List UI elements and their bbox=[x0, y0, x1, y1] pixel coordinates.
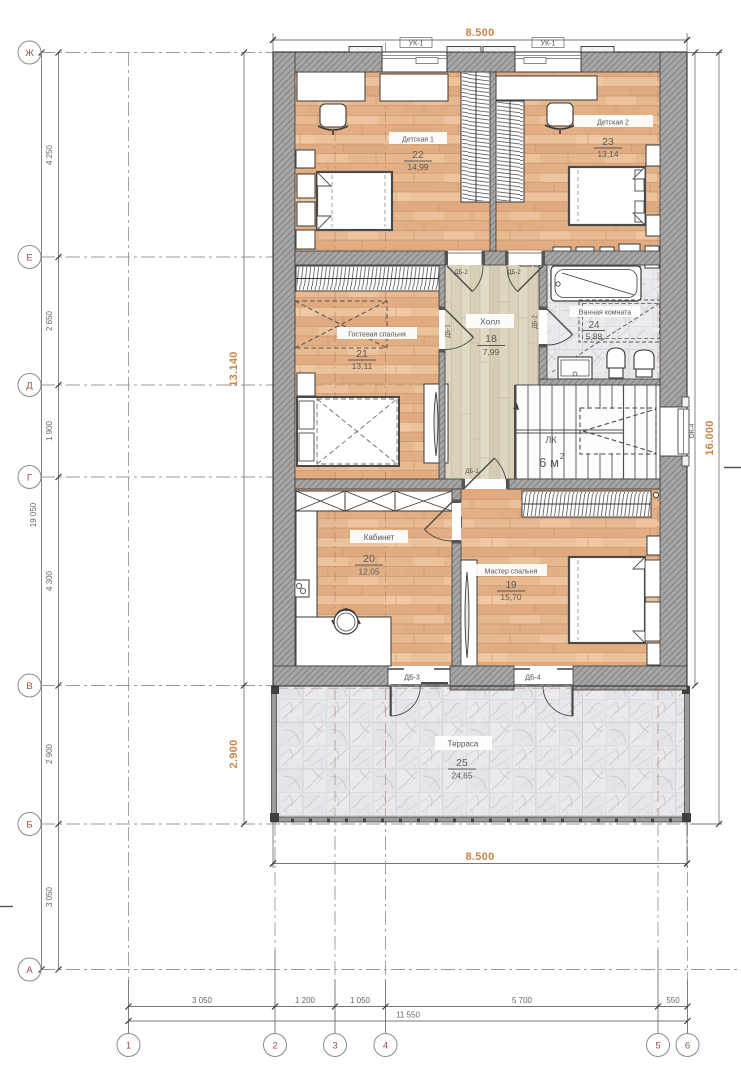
svg-text:13.140: 13.140 bbox=[228, 351, 240, 386]
svg-text:Детская 1: Детская 1 bbox=[402, 137, 434, 144]
svg-text:4 250: 4 250 bbox=[45, 144, 54, 165]
svg-text:6 м: 6 м bbox=[539, 455, 559, 470]
svg-text:1 200: 1 200 bbox=[295, 996, 316, 1005]
svg-text:12,05: 12,05 bbox=[358, 567, 380, 577]
svg-text:8.500: 8.500 bbox=[465, 27, 494, 39]
svg-text:1: 1 bbox=[126, 1041, 131, 1052]
svg-text:Детская 2: Детская 2 bbox=[597, 120, 629, 127]
svg-text:1 900: 1 900 bbox=[45, 420, 54, 441]
svg-text:14,99: 14,99 bbox=[407, 162, 429, 172]
svg-text:УК-1: УК-1 bbox=[541, 41, 556, 48]
svg-text:Е: Е bbox=[26, 253, 32, 264]
svg-text:3 050: 3 050 bbox=[45, 886, 54, 907]
svg-text:ДБ-1: ДБ-1 bbox=[465, 469, 479, 475]
svg-text:3: 3 bbox=[332, 1041, 337, 1052]
svg-text:5,88: 5,88 bbox=[586, 332, 603, 342]
svg-text:ДБ-1: ДБ-1 bbox=[446, 324, 452, 338]
svg-text:24: 24 bbox=[588, 320, 600, 331]
svg-text:ЛК: ЛК bbox=[545, 435, 557, 445]
svg-text:Г: Г bbox=[27, 473, 32, 484]
svg-text:16.000: 16.000 bbox=[704, 420, 716, 455]
svg-text:11 550: 11 550 bbox=[396, 1011, 420, 1020]
svg-text:19: 19 bbox=[505, 580, 517, 591]
svg-text:Б: Б bbox=[26, 820, 32, 831]
svg-text:Кабинет: Кабинет bbox=[364, 533, 395, 542]
svg-text:22: 22 bbox=[412, 149, 424, 161]
svg-text:3 050: 3 050 bbox=[192, 996, 213, 1005]
svg-text:2: 2 bbox=[560, 452, 565, 461]
svg-text:В: В bbox=[26, 681, 32, 692]
svg-text:Ж: Ж bbox=[25, 48, 34, 59]
svg-text:25: 25 bbox=[456, 757, 468, 769]
svg-text:550: 550 bbox=[666, 996, 680, 1005]
svg-text:13,11: 13,11 bbox=[352, 361, 373, 371]
svg-text:ДБ-4: ДБ-4 bbox=[525, 675, 541, 682]
svg-text:18: 18 bbox=[485, 333, 497, 345]
svg-text:5 700: 5 700 bbox=[512, 996, 533, 1005]
svg-text:Гостевая спальня: Гостевая спальня bbox=[348, 332, 406, 339]
svg-text:ДБ-2: ДБ-2 bbox=[533, 315, 539, 329]
svg-text:13,14: 13,14 bbox=[597, 149, 619, 159]
svg-text:Ванная комната: Ванная комната bbox=[579, 310, 632, 317]
svg-text:24,65: 24,65 bbox=[451, 771, 473, 781]
svg-text:20: 20 bbox=[363, 553, 375, 565]
svg-text:Д: Д bbox=[26, 381, 33, 392]
svg-text:15,70: 15,70 bbox=[500, 592, 522, 602]
svg-text:8.500: 8.500 bbox=[465, 851, 494, 863]
svg-text:УК-1: УК-1 bbox=[409, 41, 424, 48]
svg-text:ДБ-2: ДБ-2 bbox=[454, 270, 468, 276]
svg-text:2: 2 bbox=[272, 1041, 277, 1052]
svg-text:5: 5 bbox=[655, 1041, 660, 1052]
svg-text:ДБ-2: ДБ-2 bbox=[507, 270, 521, 276]
svg-text:4 300: 4 300 bbox=[45, 570, 54, 591]
svg-text:7,99: 7,99 bbox=[483, 347, 500, 357]
svg-text:23: 23 bbox=[602, 136, 614, 148]
svg-text:1 050: 1 050 bbox=[350, 996, 371, 1005]
svg-text:А: А bbox=[26, 965, 33, 976]
svg-text:6: 6 bbox=[685, 1041, 690, 1052]
svg-text:2.900: 2.900 bbox=[228, 739, 240, 768]
svg-text:Холл: Холл bbox=[480, 317, 500, 327]
svg-text:2 650: 2 650 bbox=[45, 310, 54, 331]
svg-text:4: 4 bbox=[383, 1041, 388, 1052]
svg-text:ДБ-3: ДБ-3 bbox=[404, 675, 420, 682]
svg-text:21: 21 bbox=[356, 348, 368, 360]
svg-text:Терраса: Терраса bbox=[448, 740, 479, 749]
svg-text:19 050: 19 050 bbox=[29, 502, 38, 527]
svg-text:Мастер спальня: Мастер спальня bbox=[485, 569, 538, 576]
svg-text:2 900: 2 900 bbox=[45, 743, 54, 764]
